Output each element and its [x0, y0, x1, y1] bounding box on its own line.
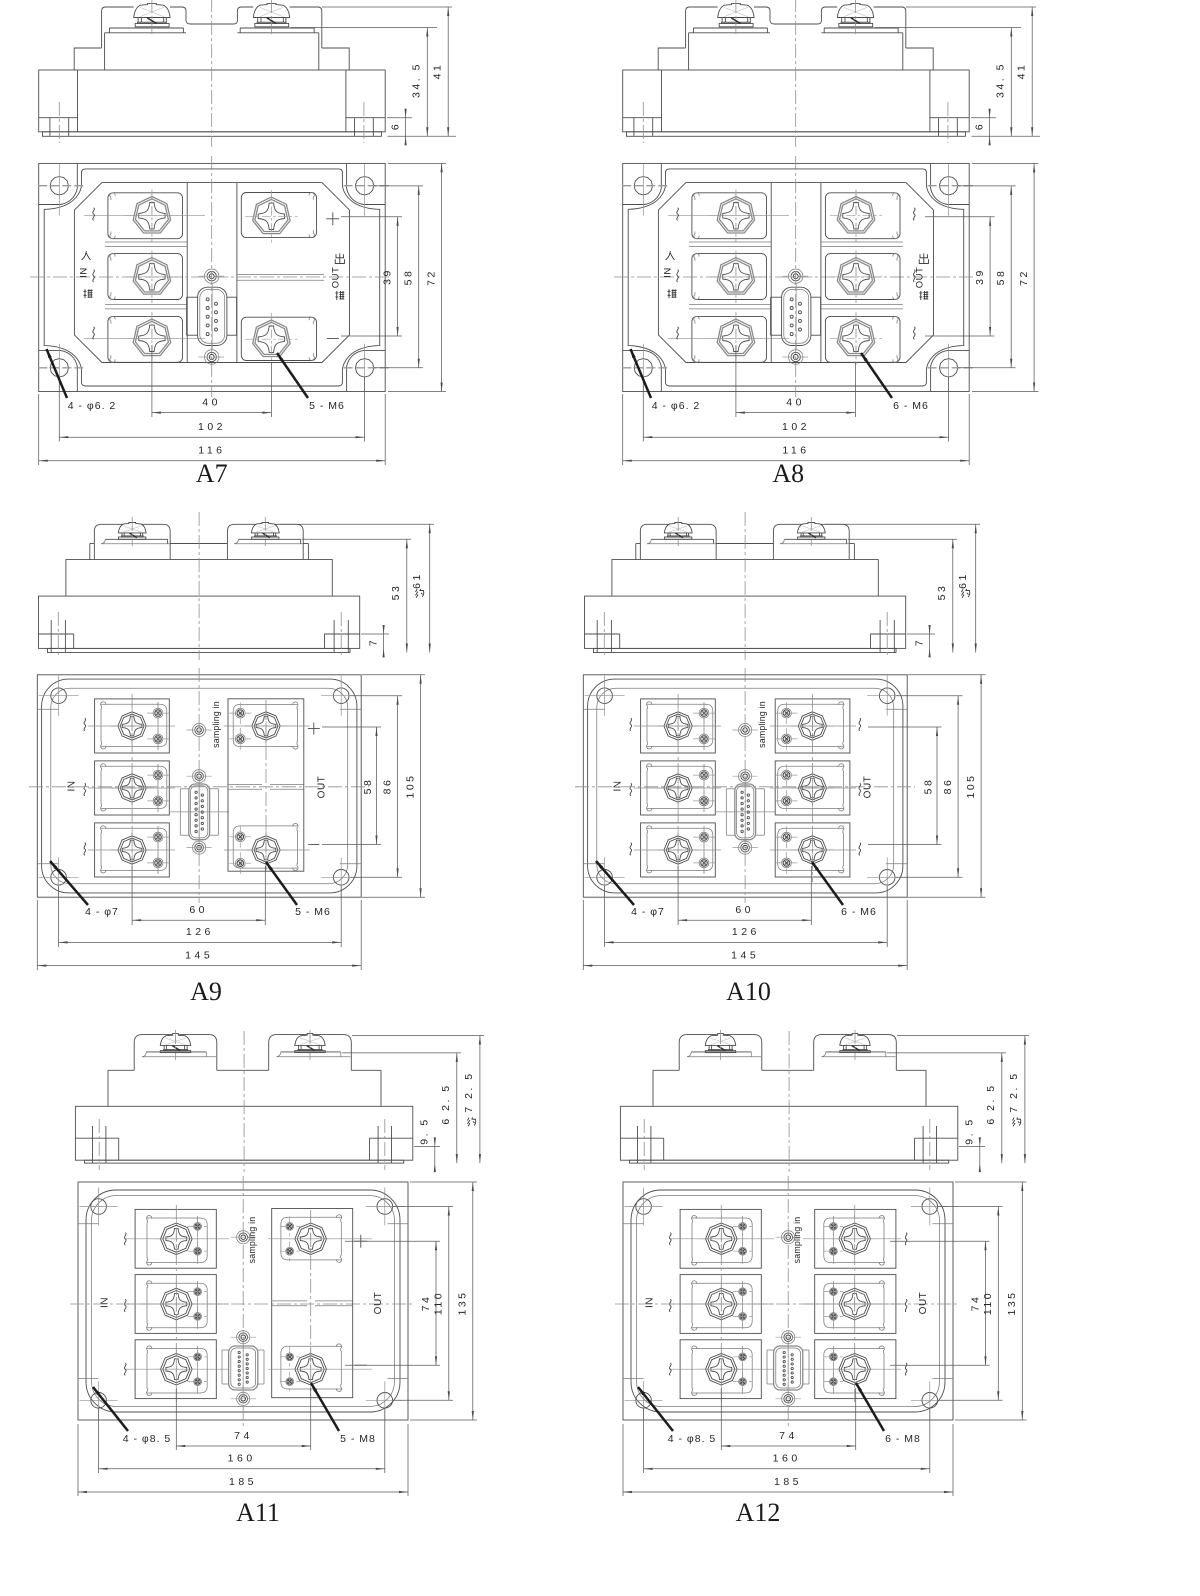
svg-text:40: 40 — [202, 397, 221, 409]
svg-text:7 2. 5: 7 2. 5 — [1008, 1071, 1020, 1112]
svg-text:4 - φ7: 4 - φ7 — [85, 906, 119, 918]
svg-text:5 - M6: 5 - M6 — [295, 906, 331, 918]
svg-text:7: 7 — [368, 638, 380, 646]
svg-text:74: 74 — [420, 1295, 432, 1312]
svg-text:A12: A12 — [736, 1498, 781, 1527]
svg-text:6 - M6: 6 - M6 — [893, 400, 929, 412]
svg-text:6: 6 — [390, 122, 402, 130]
svg-text:A10: A10 — [726, 977, 771, 1006]
svg-text:9. 5: 9. 5 — [964, 1117, 976, 1145]
svg-text:60: 60 — [189, 904, 208, 916]
svg-text:5 - M8: 5 - M8 — [340, 1433, 376, 1445]
svg-text:6 2. 5: 6 2. 5 — [440, 1083, 452, 1124]
svg-text:74: 74 — [969, 1295, 981, 1312]
svg-text:40: 40 — [786, 397, 805, 409]
svg-text:4 - φ6. 2: 4 - φ6. 2 — [68, 400, 117, 412]
svg-text:102: 102 — [782, 421, 810, 433]
svg-text:6 - M6: 6 - M6 — [841, 906, 877, 918]
svg-text:185: 185 — [229, 1476, 257, 1488]
svg-text:41: 41 — [432, 63, 444, 80]
svg-text:4 - φ6. 2: 4 - φ6. 2 — [652, 400, 701, 412]
svg-text:105: 105 — [404, 773, 416, 798]
svg-text:IN: IN — [663, 267, 674, 278]
svg-text:53: 53 — [936, 584, 948, 601]
svg-text:126: 126 — [186, 926, 214, 938]
svg-text:9. 5: 9. 5 — [419, 1117, 431, 1145]
svg-text:4 - φ8. 5: 4 - φ8. 5 — [123, 1433, 172, 1445]
svg-text:185: 185 — [774, 1476, 802, 1488]
svg-text:sampling in: sampling in — [792, 1217, 802, 1264]
svg-text:IN: IN — [79, 267, 90, 278]
svg-text:6 2. 5: 6 2. 5 — [985, 1083, 997, 1124]
svg-text:4 - φ8. 5: 4 - φ8. 5 — [668, 1433, 717, 1445]
svg-text:110: 110 — [433, 1291, 445, 1315]
svg-text:sampling in: sampling in — [757, 701, 767, 748]
svg-text:OUT: OUT — [915, 267, 926, 289]
svg-text:58: 58 — [362, 778, 374, 795]
svg-text:72: 72 — [425, 269, 437, 286]
svg-text:145: 145 — [185, 949, 213, 961]
svg-text:39: 39 — [381, 268, 393, 285]
svg-text:OUT: OUT — [331, 267, 342, 289]
svg-text:105: 105 — [965, 773, 977, 798]
svg-text:5 - M6: 5 - M6 — [309, 400, 345, 412]
svg-text:7: 7 — [914, 638, 926, 646]
svg-text:39: 39 — [974, 268, 986, 285]
svg-text:160: 160 — [228, 1453, 256, 1465]
svg-text:135: 135 — [457, 1290, 469, 1315]
svg-text:IN: IN — [645, 1297, 656, 1308]
svg-text:sampling in: sampling in — [211, 701, 221, 748]
svg-text:60: 60 — [735, 904, 754, 916]
svg-text:IN: IN — [100, 1297, 111, 1308]
svg-text:4 - φ7: 4 - φ7 — [631, 906, 665, 918]
svg-text:116: 116 — [782, 445, 809, 457]
svg-text:A7: A7 — [196, 459, 228, 488]
svg-text:sampling in: sampling in — [247, 1217, 257, 1264]
svg-text:7 2. 5: 7 2. 5 — [463, 1071, 475, 1112]
svg-text:61: 61 — [957, 572, 969, 589]
svg-text:110: 110 — [982, 1291, 994, 1315]
svg-text:86: 86 — [942, 778, 954, 795]
svg-text:72: 72 — [1018, 269, 1030, 286]
svg-text:OUT: OUT — [863, 776, 874, 799]
svg-text:A8: A8 — [772, 459, 804, 488]
svg-text:41: 41 — [1016, 63, 1028, 80]
svg-text:34. 5: 34. 5 — [995, 62, 1007, 98]
svg-text:135: 135 — [1006, 1290, 1018, 1315]
svg-text:58: 58 — [923, 778, 935, 795]
svg-text:A11: A11 — [236, 1498, 280, 1527]
svg-text:126: 126 — [732, 926, 760, 938]
svg-text:OUT: OUT — [373, 1292, 384, 1315]
svg-text:IN: IN — [613, 781, 624, 792]
svg-text:145: 145 — [731, 949, 759, 961]
svg-text:116: 116 — [198, 445, 225, 457]
svg-text:74: 74 — [234, 1430, 253, 1442]
svg-text:OUT: OUT — [317, 776, 328, 799]
svg-text:OUT: OUT — [918, 1292, 929, 1315]
svg-text:6: 6 — [974, 122, 986, 130]
svg-text:6 - M8: 6 - M8 — [885, 1433, 921, 1445]
svg-text:34. 5: 34. 5 — [411, 62, 423, 98]
svg-text:74: 74 — [779, 1430, 798, 1442]
svg-text:53: 53 — [390, 584, 402, 601]
svg-text:61: 61 — [411, 572, 423, 589]
svg-text:58: 58 — [403, 269, 415, 286]
svg-text:86: 86 — [381, 778, 393, 795]
svg-text:A9: A9 — [190, 977, 222, 1006]
svg-text:IN: IN — [67, 781, 78, 792]
svg-text:102: 102 — [198, 421, 226, 433]
svg-text:160: 160 — [773, 1453, 801, 1465]
svg-text:58: 58 — [995, 269, 1007, 286]
